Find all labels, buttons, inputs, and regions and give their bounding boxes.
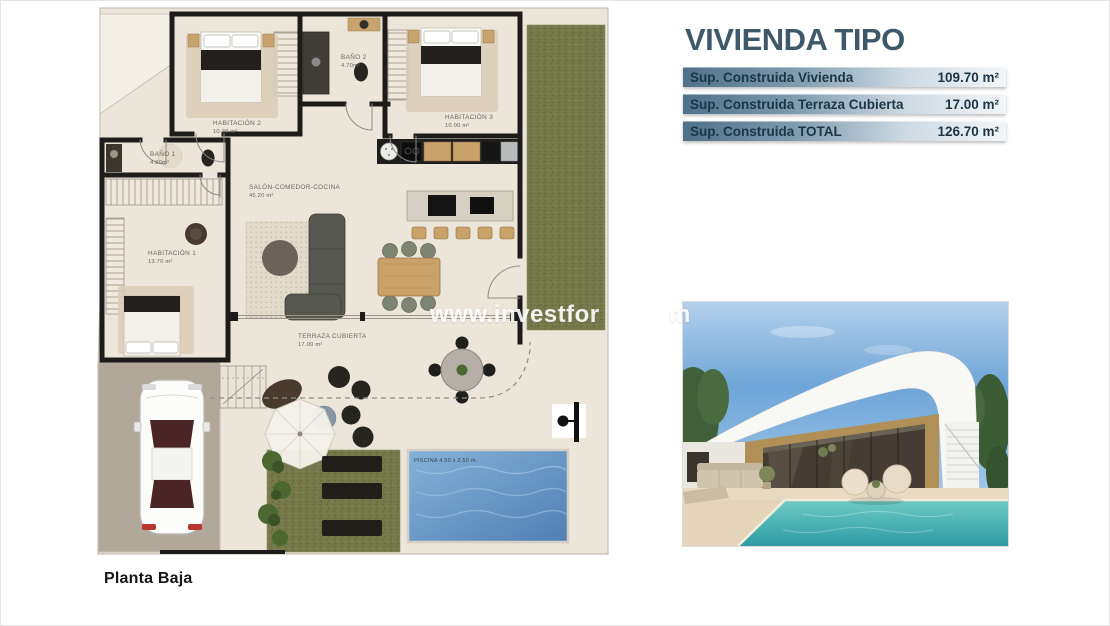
pool: PISCINA 4.50 x 2.50 m. xyxy=(408,450,568,542)
armchair-cushion xyxy=(190,228,202,240)
room-area-habitacion-2: 10.20 m² xyxy=(213,129,237,135)
floor-plan: PISCINA 4.50 x 2.50 m. xyxy=(60,6,620,558)
room-label-bano-2: BAÑO 2 xyxy=(341,52,367,61)
room-label-salon: SALÓN-COMEDOR-COCINA xyxy=(249,182,341,191)
kitchen-counter xyxy=(377,139,520,164)
car xyxy=(134,380,210,534)
room-label-habitacion-1: HABITACIÓN 1 xyxy=(148,248,196,257)
info-row-value: 17.00 m² xyxy=(945,97,999,112)
cloud xyxy=(771,326,835,338)
photo-pool xyxy=(738,500,1008,546)
info-row-label: Sup. Construida Vivienda xyxy=(690,70,853,85)
garden-right xyxy=(527,25,605,330)
room-area-bano-2: 4.70m² xyxy=(341,63,360,69)
info-row-total: Sup. Construida TOTAL 126.70 m² xyxy=(683,121,1006,141)
pool-label: PISCINA 4.50 x 2.50 m. xyxy=(414,458,478,464)
info-row-label: Sup. Construida Terraza Cubierta xyxy=(690,97,904,112)
info-row-value: 109.70 m² xyxy=(937,70,999,85)
info-row-vivienda: Sup. Construida Vivienda 109.70 m² xyxy=(683,67,1006,87)
info-row-terraza: Sup. Construida Terraza Cubierta 17.00 m… xyxy=(683,94,1006,114)
bed-habitacion-2 xyxy=(186,32,278,118)
room-label-habitacion-3: HABITACIÓN 3 xyxy=(445,112,493,121)
room-area-salon: 45.20 m² xyxy=(249,193,273,199)
room-area-habitacion-3: 10.00 m² xyxy=(445,123,469,129)
photo-staircase xyxy=(945,422,979,488)
room-area-terraza: 17.00 m² xyxy=(298,342,322,348)
watermark-suffix: m xyxy=(669,301,691,329)
villa-photo xyxy=(683,302,1008,546)
info-panel-title: VIVIENDA TIPO xyxy=(685,22,1006,58)
wardrobe-habitacion-3 xyxy=(388,30,408,100)
side-gate xyxy=(552,402,586,442)
entry-steps xyxy=(220,366,266,408)
room-area-habitacion-1: 13.70 m² xyxy=(148,259,172,265)
room-label-bano-1: BAÑO 1 xyxy=(150,149,176,158)
bed-habitacion-1 xyxy=(118,286,194,356)
info-panel: VIVIENDA TIPO Sup. Construida Vivienda 1… xyxy=(683,22,1006,148)
info-row-label: Sup. Construida TOTAL xyxy=(690,124,842,139)
wardrobe-habitacion-1 xyxy=(106,179,222,205)
room-label-habitacion-2: HABITACIÓN 2 xyxy=(213,118,261,127)
cloud xyxy=(864,345,912,355)
room-area-bano-1: 4.80m² xyxy=(150,160,169,166)
watermark-prefix: www.investfor xyxy=(430,301,600,329)
bed-habitacion-3 xyxy=(406,28,498,112)
sun-loungers xyxy=(322,456,382,536)
room-label-terraza: TERRAZA CUBIERTA xyxy=(298,333,367,340)
plan-caption: Planta Baja xyxy=(104,570,192,588)
info-row-value: 126.70 m² xyxy=(937,124,999,139)
